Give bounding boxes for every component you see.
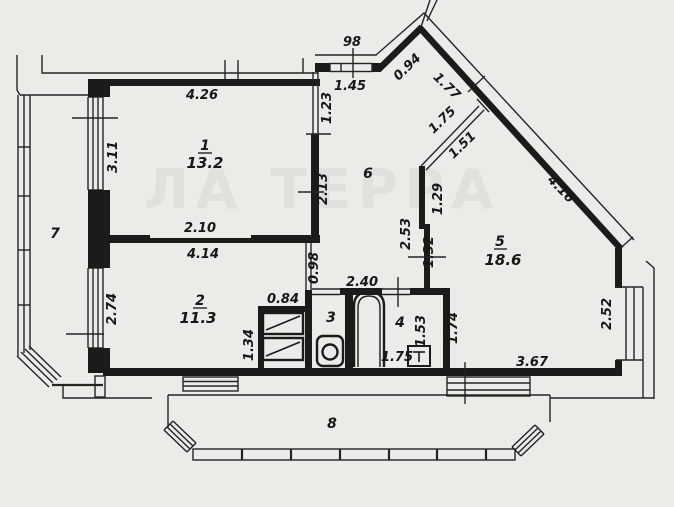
floor-plan: ЛА ТЕРРА [0, 0, 674, 507]
bathtub-icon [354, 292, 384, 367]
dim-room1-right-lower: 2.13 [316, 173, 331, 205]
dim-room2-door: 0.98 [307, 252, 322, 284]
dim-entrance-door: 98 [343, 35, 361, 50]
dim-room1-height: 3.11 [106, 141, 121, 173]
room2-number: 2 [195, 293, 205, 309]
dim-top-width: 4.26 [185, 88, 218, 103]
dim-closet-depth: 1.34 [242, 329, 257, 361]
dim-closet-width: 0.84 [267, 292, 299, 307]
dim-room5-south: 3.67 [516, 355, 549, 370]
dim-room5-west: 1.74 [446, 312, 461, 344]
dim-room5-wall-lower: 1.32 [422, 236, 437, 268]
balcony-8 [164, 395, 550, 460]
dim-diag-long: 4.16 [543, 172, 577, 206]
dim-room1-opening: 2.10 [184, 221, 216, 236]
room6-number: 6 [363, 166, 373, 182]
floor-plan-drawing: ЛА ТЕРРА [0, 0, 674, 507]
dim-hall-width: 2.40 [346, 275, 378, 290]
dim-bath-depth: 1.53 [414, 315, 429, 347]
dim-hall-wall: 2.53 [399, 218, 414, 250]
window-room2-balcony8 [183, 377, 238, 391]
room5-area: 18.6 [484, 251, 521, 269]
dim-room5-wall-upper: 1.29 [431, 183, 446, 215]
dim-room1-right-upper: 1.23 [320, 92, 335, 124]
dim-entrance-wall: 1.45 [334, 79, 366, 94]
room1-number: 1 [200, 138, 210, 154]
room5-number: 5 [495, 234, 505, 250]
room1-area: 13.2 [186, 154, 223, 172]
dim-room5-window: 2.52 [600, 298, 615, 330]
wardrobe-icon [263, 313, 303, 360]
dim-room2-width: 4.14 [186, 247, 219, 262]
room7-number: 7 [50, 226, 60, 242]
window-room2-balcony [66, 268, 104, 348]
window-room5-balcony8 [447, 377, 530, 396]
room3-number: 3 [326, 310, 336, 326]
room2-area: 11.3 [179, 309, 216, 327]
dim-room2-height: 2.74 [105, 293, 120, 325]
toilet-icon [317, 336, 343, 366]
dim-bath-width: 1.75 [381, 350, 413, 365]
room4-number: 4 [394, 315, 405, 331]
room8-number: 8 [327, 416, 337, 432]
